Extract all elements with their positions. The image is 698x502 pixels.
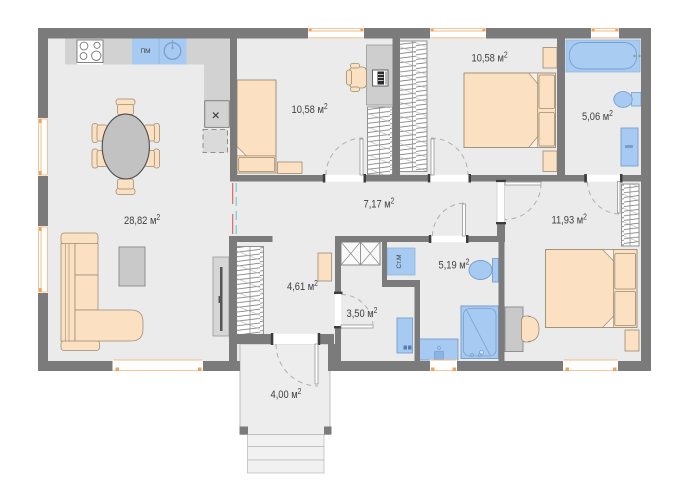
svg-text:4,61 м2: 4,61 м2 [287,279,318,294]
svg-text:4,00 м2: 4,00 м2 [271,387,302,402]
svg-text:7,17 м2: 7,17 м2 [364,196,395,211]
svg-text:ПМ: ПМ [140,48,150,55]
svg-text:10,58 м2: 10,58 м2 [472,50,508,65]
svg-text:11,93 м2: 11,93 м2 [552,212,587,227]
svg-text:3,50 м2: 3,50 м2 [347,306,378,321]
svg-text:Ст.М: Ст.М [396,254,403,268]
svg-text:10,58 м2: 10,58 м2 [292,102,328,117]
svg-text:28,82 м2: 28,82 м2 [124,213,160,228]
svg-text:5,06 м2: 5,06 м2 [582,109,613,124]
svg-text:5,19 м2: 5,19 м2 [439,257,470,272]
